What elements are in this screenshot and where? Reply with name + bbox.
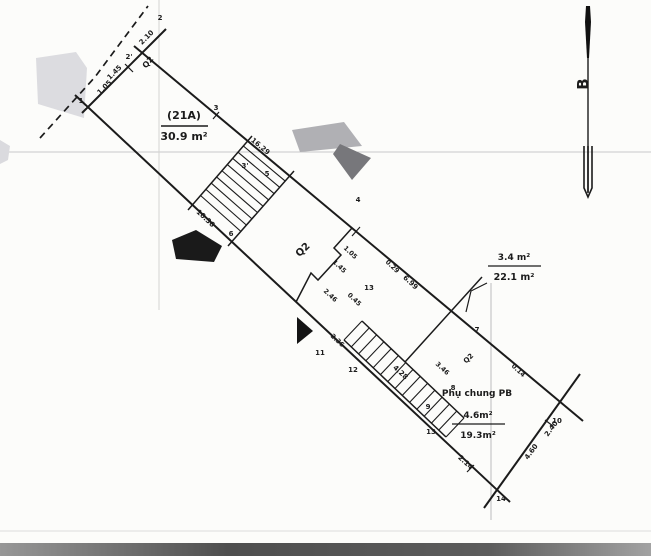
label-pt-3: 3 [214, 104, 219, 112]
cadastral-sketch-page: (21A)30.9 m²3.4 m²22.1 m²Phụ chung PB4.6… [0, 0, 651, 556]
label-pt-2p: 2' [125, 53, 132, 61]
label-pt-4: 4 [356, 196, 361, 204]
label-pt-7: 7 [475, 326, 480, 334]
label-pt-8: 8 [451, 384, 456, 392]
label-pt-12: 12 [348, 366, 358, 374]
label-pt-11: 11 [315, 349, 325, 357]
label-pt-13a: 13 [364, 284, 374, 292]
label-north-letter: B [574, 78, 592, 89]
label-shared-total: 19.3m² [460, 431, 496, 441]
label-shared-area: 4.6m² [463, 411, 492, 421]
label-lot-area: 30.9 m² [160, 130, 207, 143]
label-pt-6: 6 [229, 230, 234, 238]
label-lot-code: (21A) [167, 109, 201, 122]
label-pt-14: 14 [496, 495, 506, 503]
label-pt-13b: 13 [426, 428, 436, 436]
label-annex-total: 22.1 m² [494, 272, 535, 283]
label-pt-5: 5 [265, 170, 270, 178]
label-annex-area: 3.4 m² [498, 253, 530, 263]
label-pt-9: 9 [426, 403, 431, 411]
label-pt-3p: 3' [241, 162, 248, 170]
label-pt-2: 2 [158, 14, 163, 22]
cadastral-sketch: (21A)30.9 m²3.4 m²22.1 m²Phụ chung PB4.6… [0, 0, 651, 556]
scan-band-bottom [0, 543, 651, 556]
label-pt-1: 1 [79, 97, 84, 105]
paper-background [0, 0, 651, 556]
